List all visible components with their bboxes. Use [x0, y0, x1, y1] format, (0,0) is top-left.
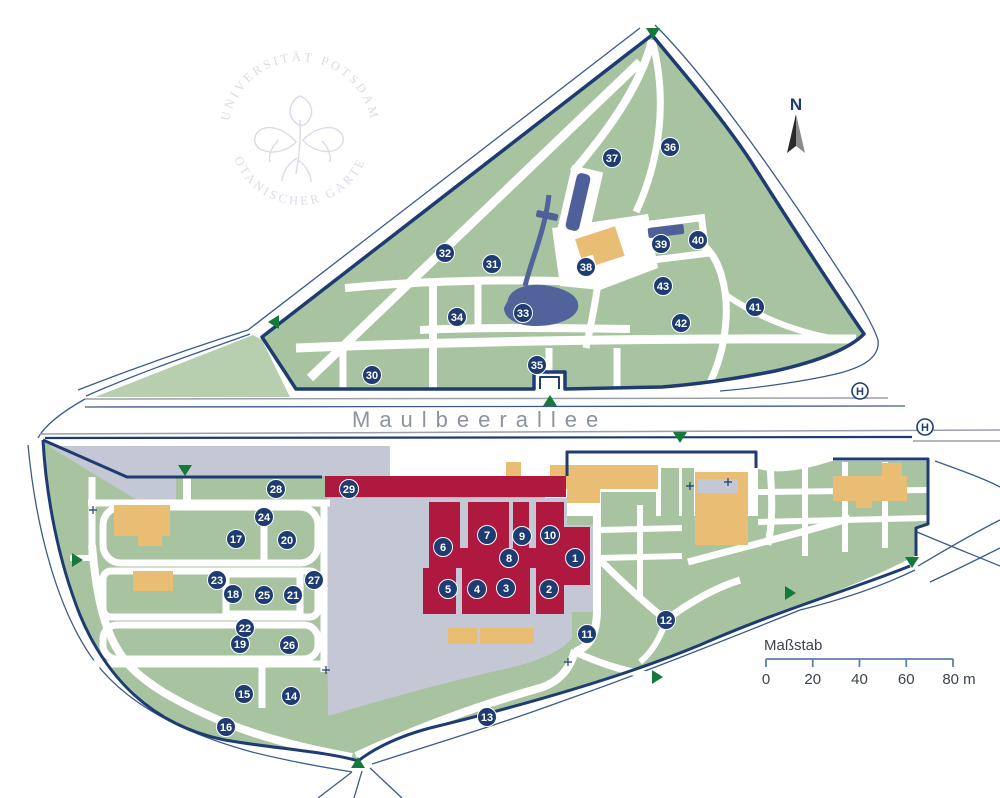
marker-number: 6: [440, 542, 446, 554]
marker-number: 9: [519, 531, 525, 543]
marker-4: 4: [468, 580, 487, 599]
bus-stop-icon: H: [917, 419, 933, 435]
marker-14: 14: [282, 687, 301, 706]
botanical-garden-map: UNIVERSITÄT POTSDAM • BOTANISCHER GARTEN…: [0, 0, 1000, 798]
marker-number: 40: [692, 235, 704, 247]
marker-number: 33: [517, 308, 529, 320]
marker-number: 4: [474, 584, 481, 596]
marker-number: 2: [546, 584, 552, 596]
bus-stops: HH: [852, 383, 933, 435]
building-orange: [480, 628, 534, 644]
marker-number: 20: [281, 535, 293, 547]
marker-26: 26: [280, 636, 299, 655]
north-label: N: [790, 95, 802, 114]
road: [318, 768, 402, 798]
marker-10: 10: [541, 526, 560, 545]
marker-number: 19: [234, 639, 246, 651]
marker-3: 3: [497, 579, 516, 598]
marker-18: 18: [224, 585, 243, 604]
map-canvas: UNIVERSITÄT POTSDAM • BOTANISCHER GARTEN…: [0, 0, 1000, 798]
marker-number: 31: [486, 259, 498, 271]
footpath: [768, 466, 772, 545]
footpath: [420, 328, 630, 330]
bus-stop-label: H: [856, 386, 864, 398]
green-patch: [682, 468, 694, 516]
marker-11: 11: [578, 625, 597, 644]
marker-25: 25: [255, 586, 274, 605]
scale-tick-label: 0: [762, 671, 770, 688]
street-line: [85, 398, 888, 399]
marker-number: 43: [657, 281, 669, 293]
north-arrow-icon: [796, 114, 805, 153]
marker-39: 39: [652, 235, 671, 254]
scale-tick-label: 80 m: [942, 671, 975, 688]
gate-structure: [540, 377, 559, 389]
marker-number: 30: [366, 370, 378, 382]
marker-number: 14: [285, 691, 298, 703]
marker-29: 29: [340, 480, 359, 499]
green-patch: [661, 468, 679, 516]
marker-24: 24: [255, 508, 274, 527]
marker-27: 27: [305, 571, 324, 590]
marker-15: 15: [235, 685, 254, 704]
bus-stop-icon: H: [852, 383, 868, 399]
road: [935, 461, 1000, 487]
marker-22: 22: [236, 619, 255, 638]
scale-tick-label: 20: [804, 671, 821, 688]
green-patch: [600, 492, 656, 516]
scale-bar: Maßstab 020406080 m: [762, 637, 976, 688]
entrance-triangle-icon: [543, 395, 557, 406]
building-orange: [882, 463, 902, 501]
road: [38, 399, 85, 438]
building-orange: [567, 489, 600, 503]
north-arrow-icon: [787, 114, 796, 153]
north-arrow: N: [787, 95, 805, 153]
marker-number: 32: [439, 248, 451, 260]
logo-bottom-arc-text: • BOTANISCHER GARTEN •: [0, 0, 368, 208]
building-orange: [114, 505, 170, 536]
marker-number: 12: [660, 615, 672, 627]
scale-ticks: 020406080 m: [762, 659, 976, 688]
marker-number: 21: [287, 590, 299, 602]
scale-tick-label: 40: [851, 671, 868, 688]
marker-16: 16: [217, 718, 236, 737]
logo-top-arc-text: UNIVERSITÄT POTSDAM: [218, 50, 382, 122]
marker-number: 10: [544, 530, 556, 542]
marker-36: 36: [661, 138, 680, 157]
marker-17: 17: [227, 530, 246, 549]
marker-number: 22: [239, 623, 251, 635]
marker-number: 5: [445, 584, 451, 596]
marker-7: 7: [478, 526, 497, 545]
building-orange: [133, 571, 173, 591]
marker-34: 34: [448, 308, 467, 327]
marker-number: 41: [749, 302, 761, 314]
marker-number: 13: [481, 712, 493, 724]
marker-38: 38: [577, 258, 596, 277]
marker-number: 3: [503, 583, 509, 595]
marker-37: 37: [603, 149, 622, 168]
marker-20: 20: [278, 531, 297, 550]
marker-33: 33: [514, 304, 533, 323]
marker-number: 17: [230, 534, 242, 546]
marker-1: 1: [566, 549, 585, 568]
marker-number: 11: [581, 629, 593, 641]
street-line: [45, 437, 912, 438]
marker-40: 40: [689, 231, 708, 250]
marker-8: 8: [500, 549, 519, 568]
marker-number: 24: [258, 512, 271, 524]
marker-5: 5: [439, 580, 458, 599]
marker-30: 30: [363, 366, 382, 385]
scale-tick-label: 60: [898, 671, 915, 688]
marker-number: 1: [572, 553, 578, 565]
road: [918, 520, 1000, 582]
marker-35: 35: [528, 356, 547, 375]
bus-stop-label: H: [921, 422, 929, 434]
marker-12: 12: [657, 611, 676, 630]
garden-logo: UNIVERSITÄT POTSDAM • BOTANISCHER GARTEN…: [0, 0, 382, 208]
road: [917, 532, 1000, 566]
marker-number: 29: [343, 484, 355, 496]
marker-23: 23: [208, 571, 227, 590]
building-glass-roof: [698, 479, 738, 493]
marker-number: 42: [675, 318, 687, 330]
marker-number: 7: [484, 530, 490, 542]
building-orange: [448, 628, 477, 644]
entrance-triangle-icon: [652, 670, 663, 684]
marker-number: 8: [506, 553, 512, 565]
marker-32: 32: [436, 244, 455, 263]
marker-number: 39: [655, 239, 667, 251]
marker-number: 36: [664, 142, 676, 154]
marker-number: 38: [580, 262, 592, 274]
scale-label: Maßstab: [764, 637, 822, 654]
marker-number: 25: [258, 590, 270, 602]
logo-flower-icon: [255, 96, 344, 182]
marker-42: 42: [672, 314, 691, 333]
marker-13: 13: [478, 708, 497, 727]
marker-number: 23: [211, 575, 223, 587]
marker-number: 26: [283, 640, 295, 652]
marker-number: 37: [606, 153, 618, 165]
marker-41: 41: [746, 298, 765, 317]
marker-number: 15: [238, 689, 250, 701]
marker-number: 34: [451, 312, 464, 324]
outer-green-wedge: [95, 335, 290, 397]
marker-number: 35: [531, 360, 543, 372]
marker-number: 18: [227, 589, 239, 601]
street-name-label: Maulbeerallee: [352, 407, 607, 432]
marker-9: 9: [513, 527, 532, 546]
marker-28: 28: [267, 480, 286, 499]
marker-number: 28: [270, 484, 282, 496]
building-orange: [138, 536, 162, 546]
marker-2: 2: [540, 580, 559, 599]
street-maulbeerallee: Maulbeerallee: [40, 398, 1000, 441]
marker-31: 31: [483, 255, 502, 274]
marker-6: 6: [434, 538, 453, 557]
building-orange: [856, 501, 872, 508]
marker-43: 43: [654, 277, 673, 296]
marker-number: 16: [220, 722, 232, 734]
marker-number: 27: [308, 575, 320, 587]
marker-21: 21: [284, 586, 303, 605]
